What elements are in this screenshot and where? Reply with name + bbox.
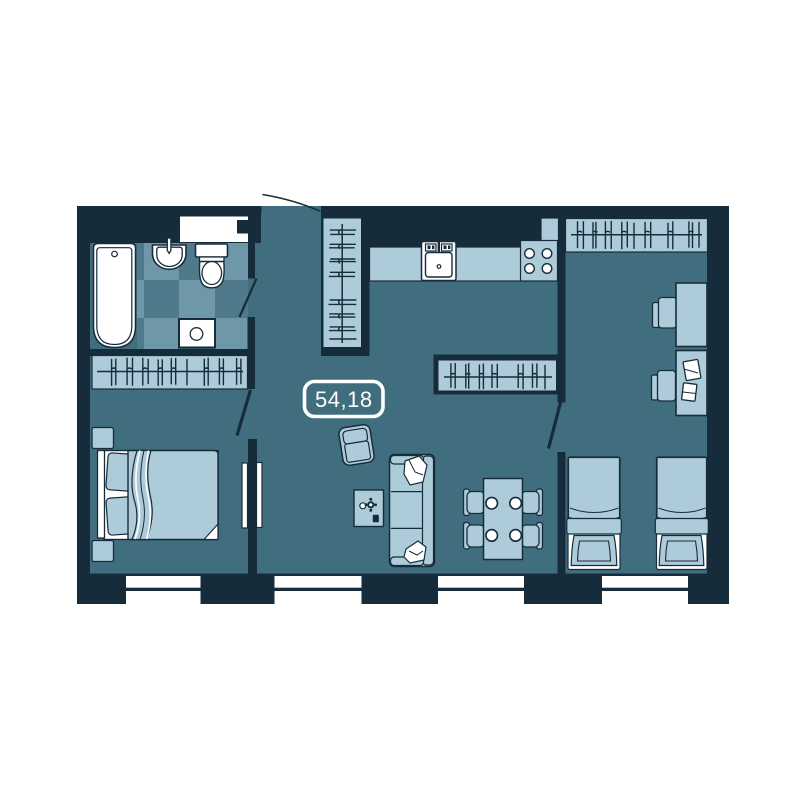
svg-text:54,18: 54,18 — [315, 387, 373, 412]
